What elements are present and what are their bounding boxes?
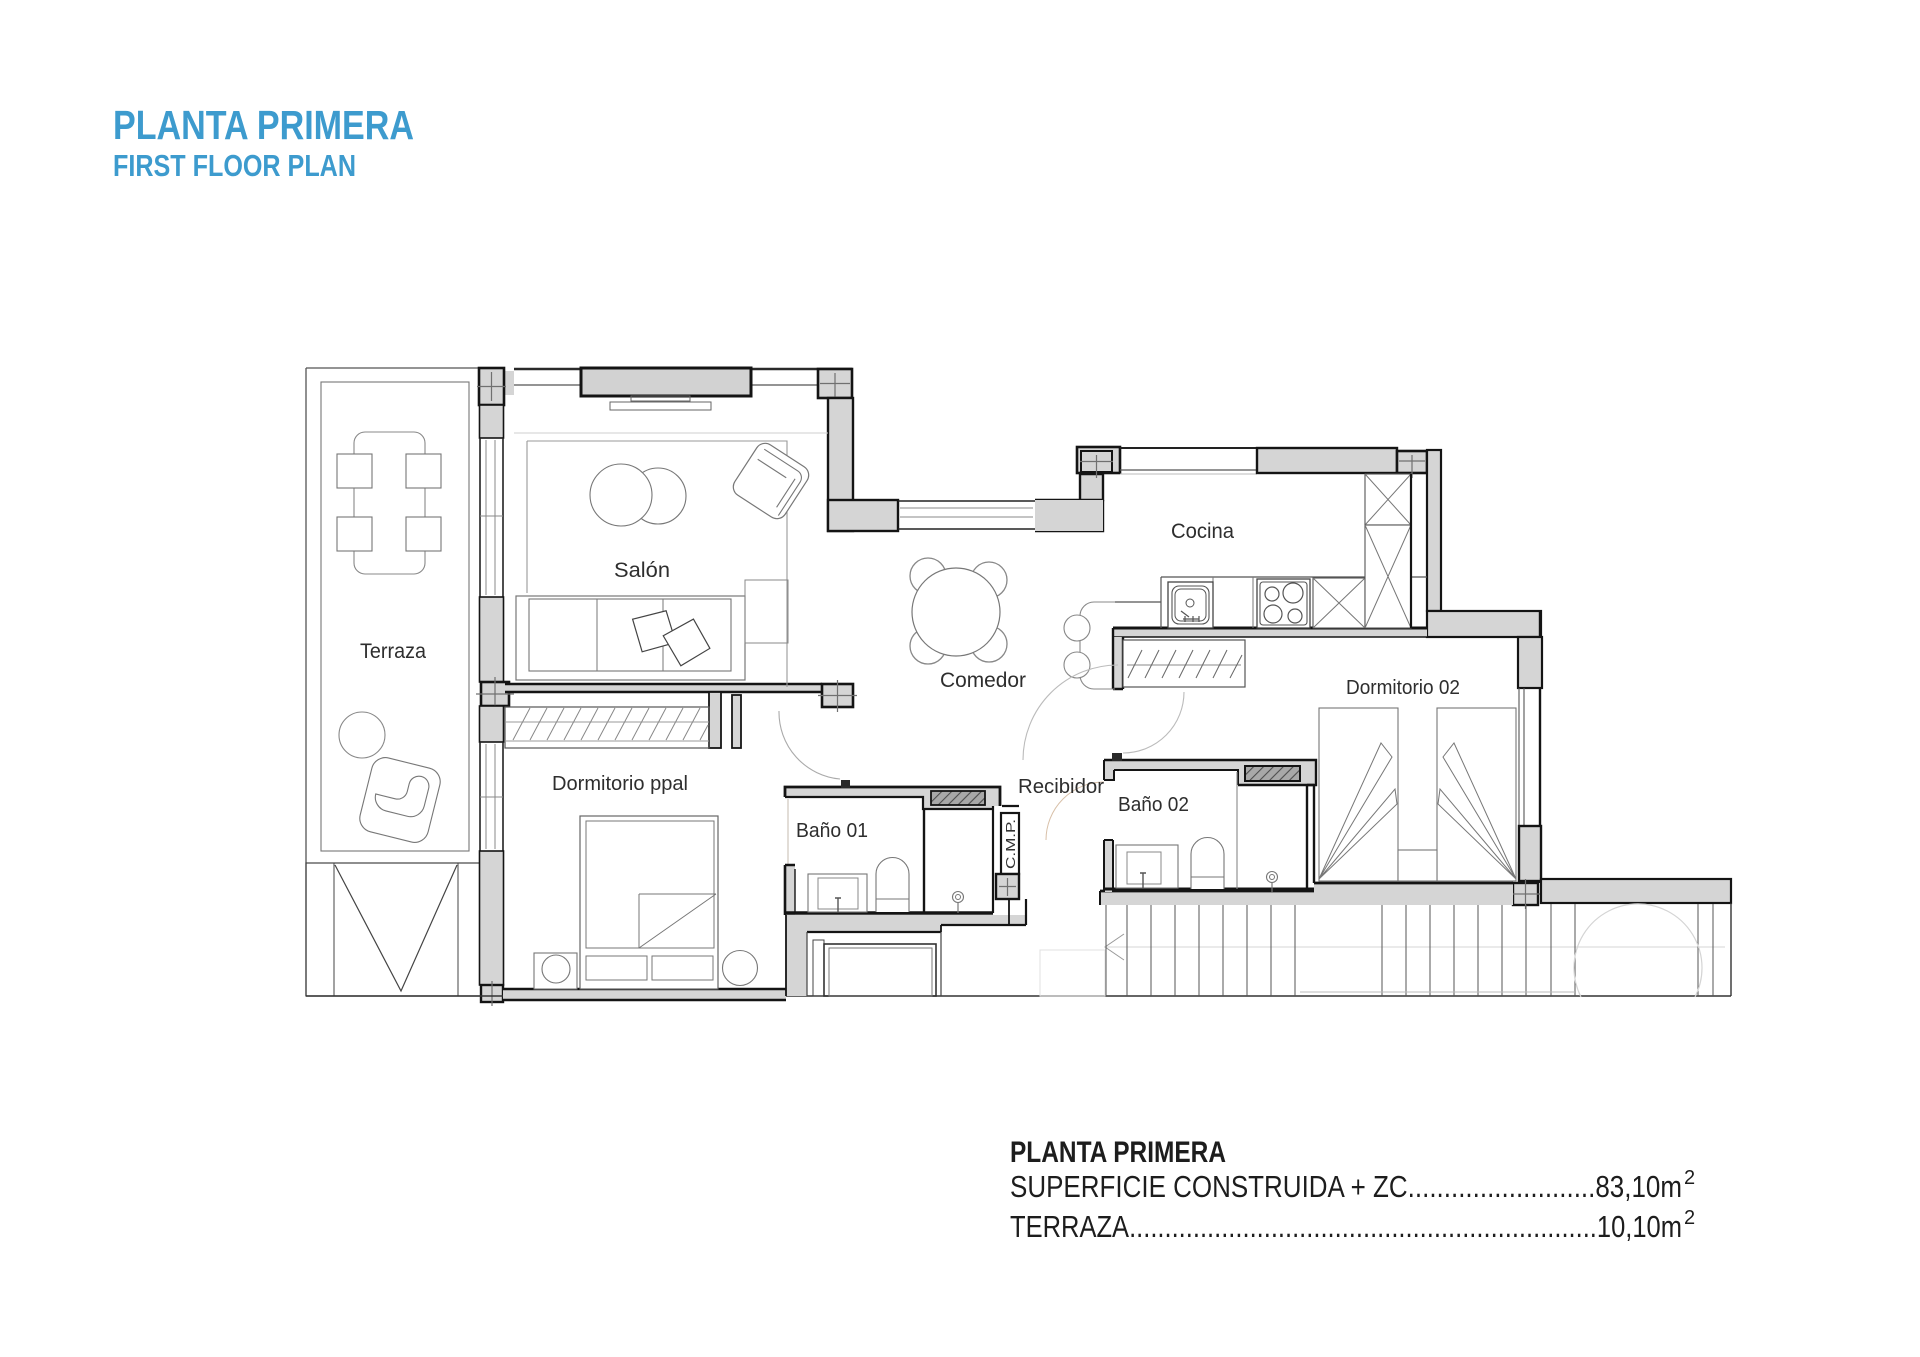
svg-text:SUPERFICIE CONSTRUIDA + ZC....: SUPERFICIE CONSTRUIDA + ZC..............… [1010, 1169, 1682, 1204]
svg-text:TERRAZA.......................: TERRAZA.................................… [1010, 1209, 1682, 1244]
svg-text:C.M.P.: C.M.P. [1004, 819, 1018, 869]
svg-text:2: 2 [1684, 1167, 1695, 1189]
svg-text:PLANTA PRIMERA: PLANTA PRIMERA [1010, 1136, 1226, 1169]
svg-text:PLANTA PRIMERA: PLANTA PRIMERA [113, 102, 414, 148]
svg-text:Terraza: Terraza [360, 640, 426, 663]
svg-text:Comedor: Comedor [940, 669, 1026, 692]
svg-text:Dormitorio 02: Dormitorio 02 [1346, 677, 1460, 699]
svg-text:Baño 01: Baño 01 [796, 820, 868, 842]
svg-text:Recibidor: Recibidor [1018, 776, 1104, 798]
svg-text:Salón: Salón [614, 559, 670, 582]
svg-text:Dormitorio ppal: Dormitorio ppal [552, 773, 688, 795]
svg-text:Cocina: Cocina [1171, 520, 1234, 543]
svg-text:2: 2 [1684, 1207, 1695, 1229]
svg-text:Baño 02: Baño 02 [1118, 794, 1189, 816]
svg-text:FIRST FLOOR PLAN: FIRST FLOOR PLAN [113, 148, 356, 183]
